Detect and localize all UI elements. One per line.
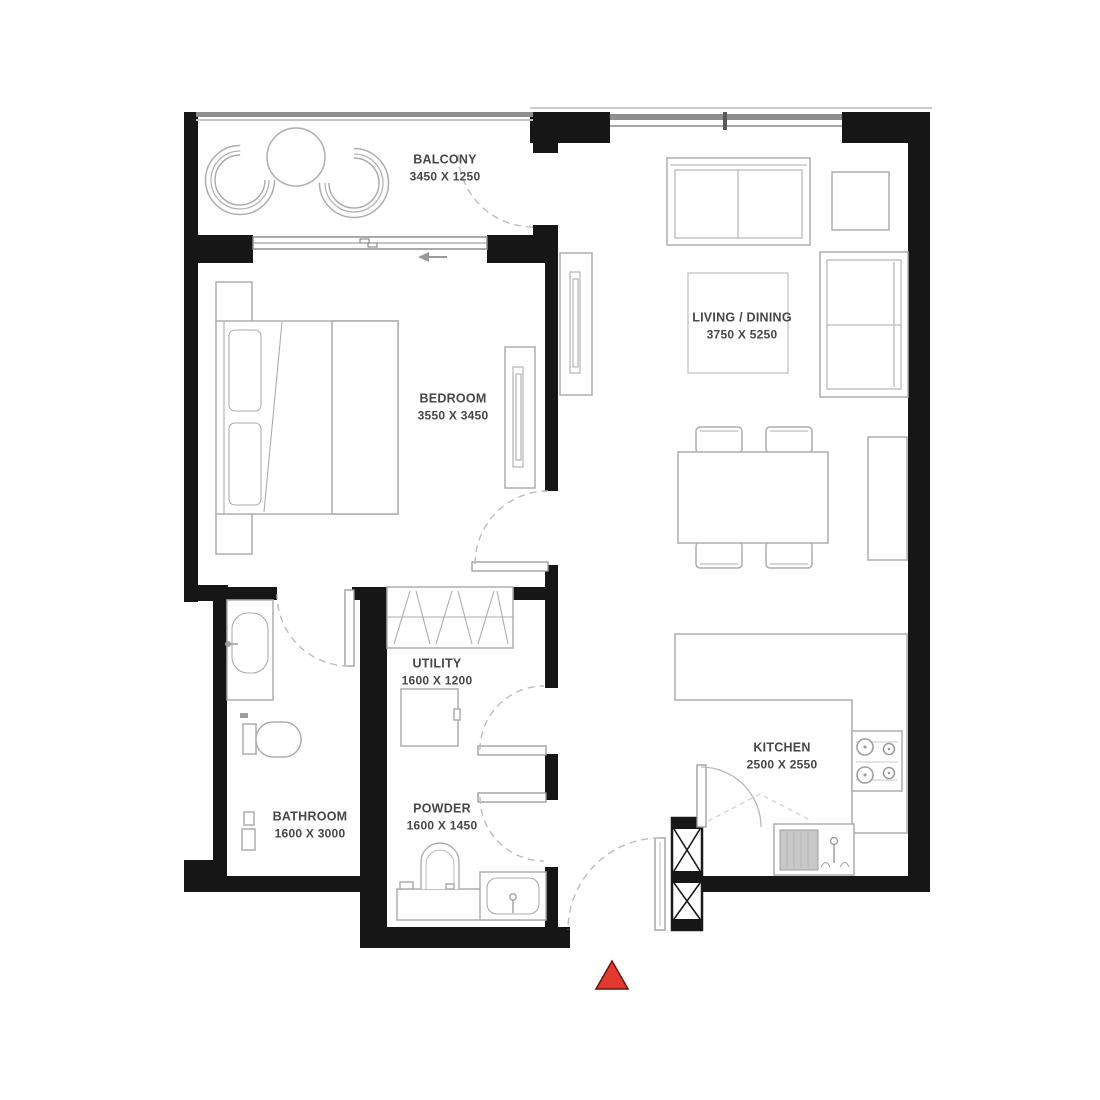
console xyxy=(868,437,907,560)
room-dimensions: 1600 X 1200 xyxy=(402,673,473,689)
entrance-door-swing xyxy=(568,838,660,930)
entrance-marker xyxy=(596,961,628,989)
utility-door-leaf xyxy=(478,746,546,755)
bathroom-door-leaf xyxy=(345,590,354,666)
toilet-flush-plate xyxy=(240,713,248,718)
powder-fixtures xyxy=(397,843,546,920)
utility-door-swing xyxy=(480,686,544,750)
shower-mixer xyxy=(244,812,254,825)
living-window xyxy=(610,112,842,143)
faucet xyxy=(831,838,838,845)
toilet-cistern xyxy=(243,724,256,754)
room-dimensions: 3550 X 3450 xyxy=(418,408,489,424)
powder-door-leaf xyxy=(478,793,546,802)
hob xyxy=(852,731,902,791)
room-name: KITCHEN xyxy=(747,740,818,757)
powder-basin xyxy=(480,872,546,920)
counter-item xyxy=(400,882,413,889)
washing-machine xyxy=(401,689,458,746)
room-name: UTILITY xyxy=(402,656,473,673)
room-dimensions: 1600 X 3000 xyxy=(273,826,348,842)
living-tv-unit xyxy=(560,253,592,395)
balcony-furniture xyxy=(206,128,389,218)
room-label-powder: POWDER 1600 X 1450 xyxy=(407,801,478,834)
room-dimensions: 2500 X 2550 xyxy=(747,757,818,773)
room-name: LIVING / DINING xyxy=(692,310,792,327)
shaft-column xyxy=(671,818,703,930)
kitchen-sink xyxy=(774,824,854,875)
wardrobe xyxy=(387,587,513,648)
room-label-utility: UTILITY 1600 X 1200 xyxy=(402,656,473,689)
living-furniture xyxy=(560,158,908,568)
floor-plan: BALCONY 3450 X 1250 BEDROOM 3550 X 3450 … xyxy=(0,0,1100,1100)
balcony-sliding-window xyxy=(253,237,487,249)
nightstand-top xyxy=(216,282,252,322)
vanity xyxy=(227,600,273,700)
balcony-table xyxy=(267,128,325,186)
room-name: POWDER xyxy=(407,801,478,818)
room-dimensions: 1600 X 1450 xyxy=(407,818,478,834)
powder-door-swing xyxy=(480,797,544,861)
toilet-bowl xyxy=(256,722,301,757)
room-dimensions: 3450 X 1250 xyxy=(410,169,481,185)
bedroom-door-swing xyxy=(475,491,548,564)
balcony-chair-right xyxy=(320,149,389,218)
side-table xyxy=(832,172,889,230)
room-label-balcony: BALCONY 3450 X 1250 xyxy=(410,152,481,185)
room-name: BALCONY xyxy=(410,152,481,169)
room-label-living-dining: LIVING / DINING 3750 X 5250 xyxy=(692,310,792,343)
balcony-edge xyxy=(196,112,533,121)
bedroom-door-leaf xyxy=(472,562,548,571)
sliding-direction-arrow xyxy=(418,252,447,262)
room-name: BEDROOM xyxy=(418,391,489,408)
nightstand-bottom xyxy=(216,513,252,554)
room-label-bedroom: BEDROOM 3550 X 3450 xyxy=(418,391,489,424)
floor-plan-drawing xyxy=(0,0,1100,1100)
dining-table xyxy=(678,452,828,543)
room-label-bathroom: BATHROOM 1600 X 3000 xyxy=(273,809,348,842)
bathroom-door-swing xyxy=(277,594,349,666)
bed-throw xyxy=(332,321,398,514)
room-dimensions: 3750 X 5250 xyxy=(692,327,792,343)
counter-item xyxy=(446,884,454,889)
shower-fitting xyxy=(242,829,255,850)
outer-wall-line xyxy=(530,107,932,109)
room-label-kitchen: KITCHEN 2500 X 2550 xyxy=(747,740,818,773)
kitchen-door-swing xyxy=(701,767,761,827)
washer-notch xyxy=(454,709,460,720)
kitchen-door-leaf xyxy=(697,765,706,827)
room-name: BATHROOM xyxy=(273,809,348,826)
balcony-chair-left xyxy=(206,146,275,215)
